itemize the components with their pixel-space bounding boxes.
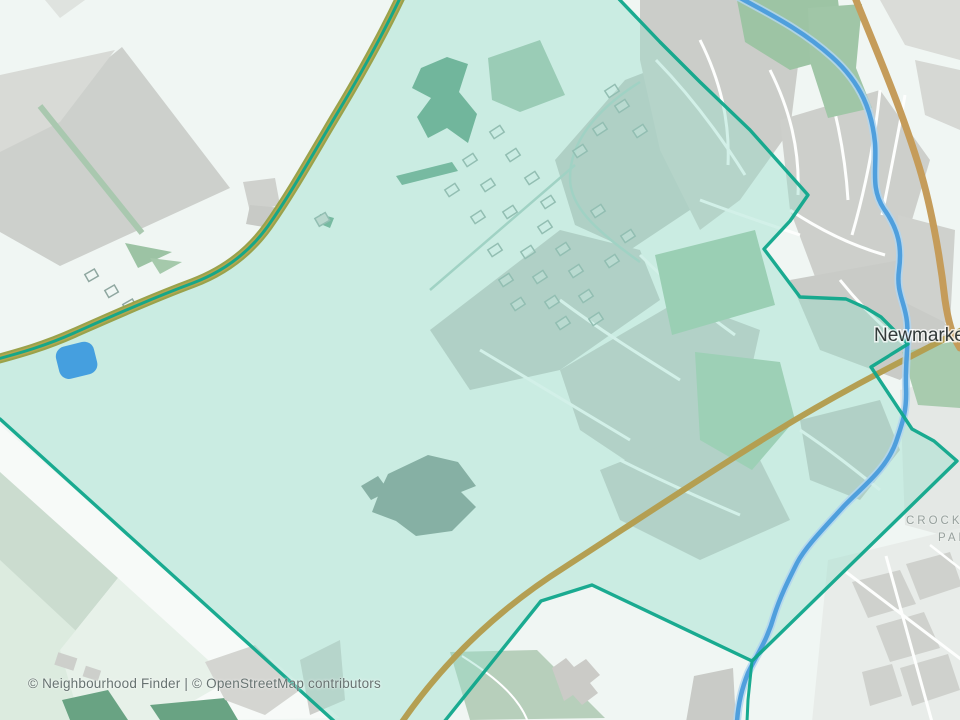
map-svg: Newmarket CROCKFORD PARK — [0, 0, 960, 720]
label-crockford-line1: CROCKFORD — [906, 515, 960, 527]
map-canvas[interactable]: Newmarket CROCKFORD PARK © Neighbourhood… — [0, 0, 960, 720]
map-attribution: © Neighbourhood Finder | © OpenStreetMap… — [28, 676, 381, 691]
label-crockford-line2: PARK — [938, 532, 960, 544]
label-newmarket: Newmarket — [874, 325, 960, 346]
